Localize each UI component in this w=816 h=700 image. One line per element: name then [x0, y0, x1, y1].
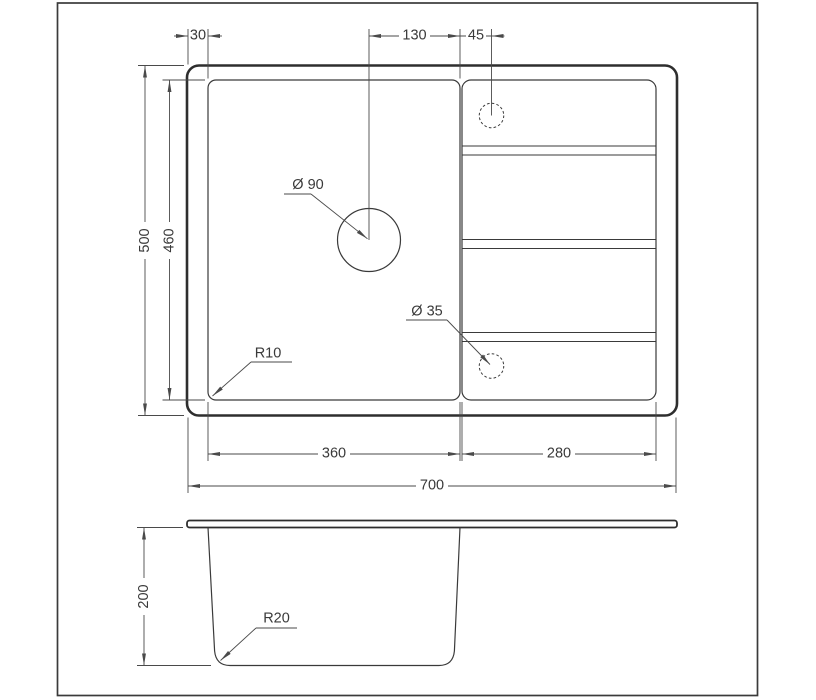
leader-arrow-r20 [221, 628, 257, 661]
dim-360-label: 360 [322, 446, 346, 462]
dim-130-label: 130 [402, 28, 426, 44]
side-view-rim [187, 521, 677, 528]
dim-200-label: 200 [136, 584, 152, 608]
leader-arrow-tap [447, 320, 490, 365]
sink-outer-outline [187, 66, 677, 416]
leader-arrow-drain [311, 194, 368, 239]
dim-45-label: 45 [468, 28, 484, 44]
dim-30-label: 30 [190, 28, 206, 44]
dimension-labels: 30 130 45 500 460 360 280 700 200 Ø 90 Ø… [136, 28, 571, 627]
tap-diameter-label: Ø 35 [411, 304, 442, 320]
dim-280-label: 280 [547, 446, 571, 462]
dim-460-label: 460 [162, 228, 178, 252]
bowl-radius-label: R10 [255, 346, 282, 362]
extension-lines [137, 29, 676, 666]
drainboard-ridges [462, 146, 656, 342]
drain-diameter-label: Ø 90 [292, 177, 323, 193]
dim-700-label: 700 [420, 478, 444, 494]
sink-dimension-drawing: 30 130 45 500 460 360 280 700 200 Ø 90 Ø… [0, 0, 816, 700]
side-view [187, 521, 677, 666]
leader-lines [213, 194, 491, 661]
dimension-lines [144, 36, 676, 666]
top-view [187, 66, 677, 416]
bottom-radius-label: R20 [263, 611, 290, 627]
side-view-bowl-section [208, 528, 460, 666]
leader-arrow-r10 [213, 362, 252, 396]
sheet-border [58, 3, 758, 696]
technical-drawing-page: 30 130 45 500 460 360 280 700 200 Ø 90 Ø… [0, 0, 816, 700]
bowl-outline [208, 80, 460, 400]
dim-500-label: 500 [137, 228, 153, 252]
